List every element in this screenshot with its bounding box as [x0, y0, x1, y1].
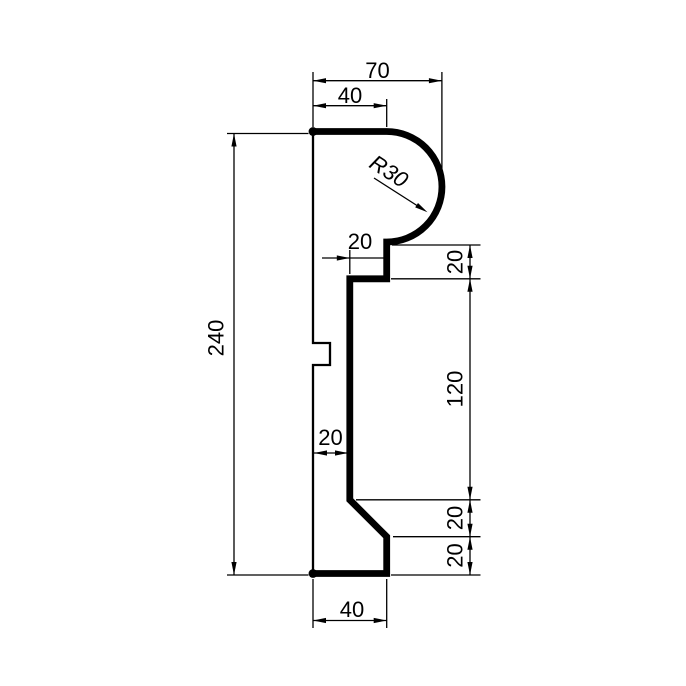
dim-arrowhead [231, 562, 236, 575]
dim-label-nose-radius: R30 [365, 150, 413, 193]
profile-outline [313, 132, 442, 574]
dim-arrowhead [337, 255, 350, 260]
dim-arrowhead [314, 450, 327, 455]
dim-label-base-height: 20 [443, 543, 468, 567]
dim-arrowhead [467, 537, 472, 550]
dim-label-wall-thickness: 20 [318, 425, 342, 450]
dim-top-flat-width: 40 [313, 83, 387, 127]
endpoint-dot-top [309, 127, 318, 136]
dim-label-neck-step-width: 20 [348, 229, 372, 254]
dim-neck-step-width: 20 [322, 229, 385, 274]
dim-arrowhead [467, 562, 472, 575]
dim-arrowhead [467, 245, 472, 258]
endpoint-dot-bottom [309, 569, 318, 578]
dim-arrowhead [467, 266, 472, 279]
radius-callout: R30 [365, 150, 427, 213]
dim-arrowhead [313, 78, 326, 83]
leader-arrowhead [415, 203, 427, 212]
dim-arrowhead [231, 134, 236, 147]
drawing-page: 70 40 240 R30 20 [0, 0, 686, 686]
dim-bottom-width: 40 [313, 579, 387, 628]
dim-arrowhead [313, 618, 326, 623]
dim-label-top-overall-width: 70 [365, 58, 389, 83]
dim-label-chamfer-height: 20 [443, 506, 468, 530]
dim-label-web-height: 120 [443, 371, 468, 408]
dim-overall-height: 240 [204, 134, 309, 576]
dim-label-bottom-width: 40 [340, 597, 364, 622]
dim-arrowhead [313, 103, 326, 108]
profile-back-edge [313, 132, 330, 574]
dim-arrowhead [467, 524, 472, 537]
drawing-canvas: 70 40 240 R30 20 [0, 0, 686, 686]
dim-arrowhead [374, 103, 387, 108]
dim-arrowhead [335, 450, 348, 455]
dim-label-top-flat-width: 40 [338, 83, 362, 108]
dim-label-neck-height: 20 [443, 250, 468, 274]
dim-arrowhead [467, 279, 472, 292]
dim-arrowhead [467, 487, 472, 500]
dim-label-overall-height: 240 [204, 320, 229, 357]
dim-arrowhead [374, 618, 387, 623]
dim-wall-thickness: 20 [314, 425, 348, 456]
dim-arrowhead [429, 78, 442, 83]
dim-arrowhead [467, 500, 472, 513]
